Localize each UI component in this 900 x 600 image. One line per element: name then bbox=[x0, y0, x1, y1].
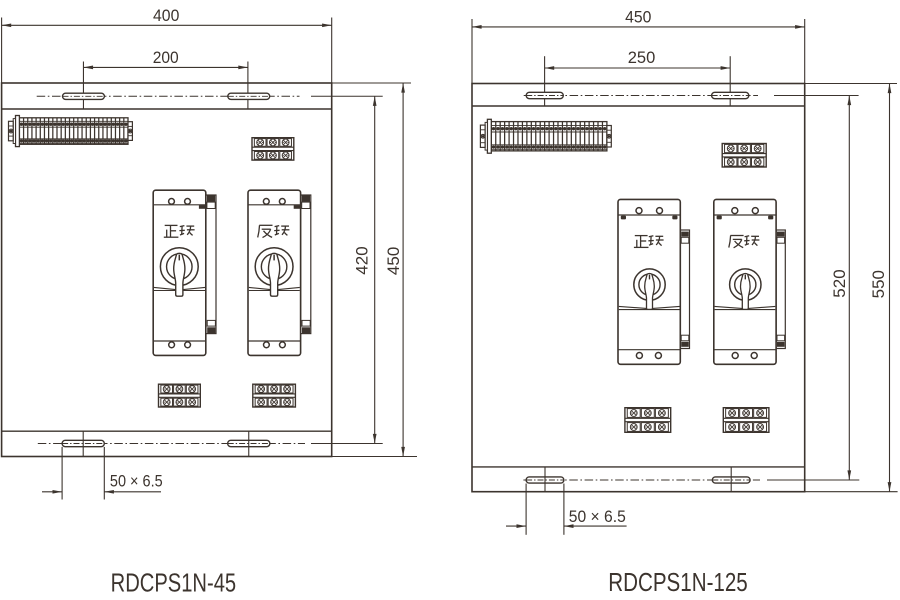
svg-text:450: 450 bbox=[625, 7, 651, 26]
svg-text:50 × 6.5: 50 × 6.5 bbox=[110, 471, 163, 490]
svg-text:50 × 6.5: 50 × 6.5 bbox=[569, 507, 626, 526]
svg-text:550: 550 bbox=[869, 270, 888, 298]
svg-text:250: 250 bbox=[628, 48, 656, 67]
svg-text:520: 520 bbox=[830, 269, 849, 297]
svg-text:RDCPS1N-45: RDCPS1N-45 bbox=[111, 570, 237, 598]
svg-text:400: 400 bbox=[153, 6, 179, 25]
svg-text:450: 450 bbox=[384, 247, 403, 275]
svg-text:420: 420 bbox=[352, 246, 371, 274]
svg-text:RDCPS1N-125: RDCPS1N-125 bbox=[608, 569, 748, 597]
svg-text:200: 200 bbox=[153, 48, 179, 67]
